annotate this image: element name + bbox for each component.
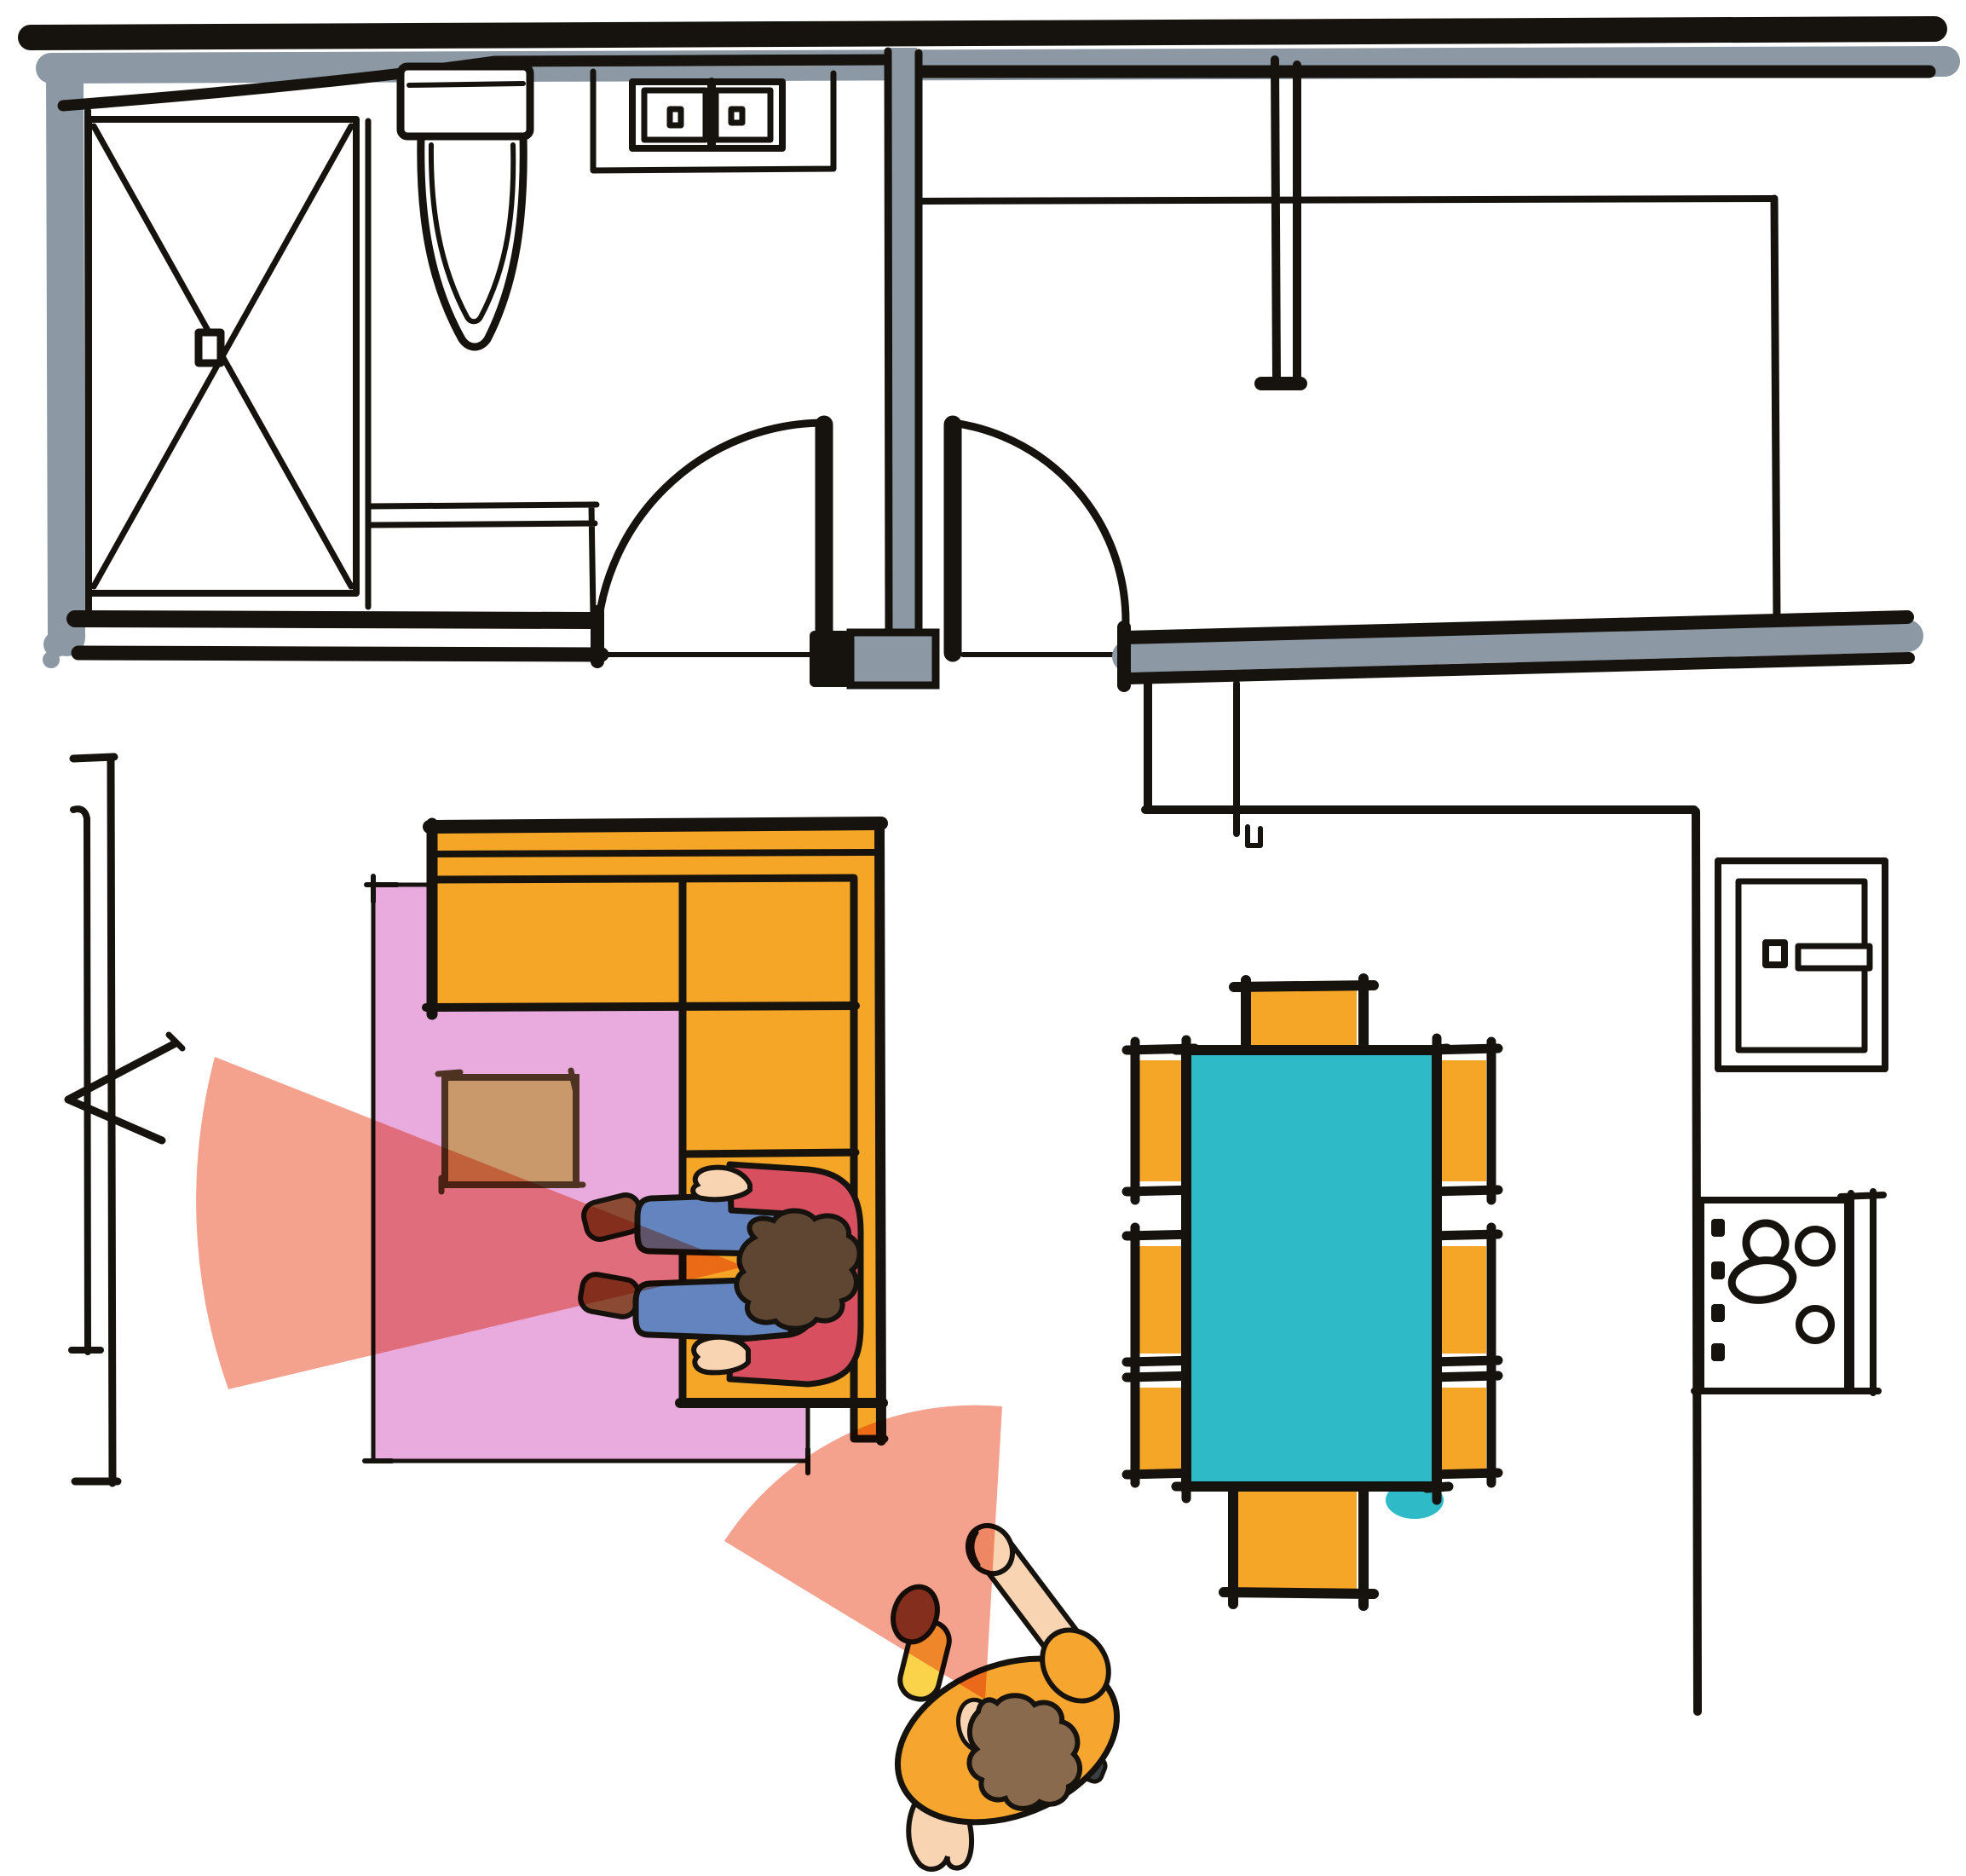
central-wall-fill	[890, 48, 917, 632]
stove-burner-4	[1799, 1308, 1831, 1341]
wall-bracket-marks	[68, 757, 182, 1483]
floor-plan-drawing	[0, 0, 1966, 1876]
sofa-seam-1	[426, 1006, 856, 1007]
bathroom-bench	[370, 505, 597, 614]
toilet	[401, 66, 530, 347]
sitting-person-hand-2	[694, 1337, 748, 1373]
stove-knob-2	[1711, 1261, 1725, 1279]
chair-seat	[1435, 1388, 1486, 1469]
toilet-tank	[401, 66, 530, 136]
sofa-seam-2	[683, 1152, 856, 1154]
closet-partition-wall	[1275, 60, 1297, 384]
sofa-armrest-outer-line	[879, 823, 881, 1440]
door-arc-left	[597, 423, 824, 648]
left-wall-shadow	[65, 72, 66, 638]
room-divider-vertical	[1774, 199, 1777, 621]
toilet-tank-lid-line	[409, 84, 523, 85]
kitchen-boundary-vertical	[1696, 811, 1698, 1711]
living-room	[68, 757, 885, 1483]
bracket-inner-line	[73, 809, 88, 1352]
kitchen-sink-cabinet	[1718, 861, 1885, 1069]
central-wall-stub	[850, 632, 936, 685]
sink-drain	[1766, 943, 1784, 965]
stove	[1694, 1192, 1883, 1393]
shower	[89, 119, 368, 607]
vanity-double-sink	[593, 72, 833, 170]
door-arc-right	[953, 423, 1126, 639]
dining-table	[1186, 1050, 1437, 1486]
bath-bottom-wall-1	[75, 619, 590, 621]
stove-burner-1	[1746, 1223, 1785, 1262]
chair-seat	[1237, 1490, 1357, 1590]
sofa-back-seam	[431, 852, 878, 854]
left-wall-shadow-blob2	[43, 651, 60, 668]
stove-knob-4	[1711, 1343, 1725, 1361]
sofa-top-edge	[430, 823, 881, 827]
sofa-cushion-top-line	[432, 878, 854, 880]
bath-bottom-wall-2	[78, 653, 602, 655]
sink-drain-right	[731, 109, 742, 123]
sofa-cushion-right-1	[683, 1007, 854, 1154]
room-divider-horizontal	[920, 199, 1774, 201]
sofa-cushion-top-right	[683, 880, 854, 1007]
dining-area	[1127, 978, 1498, 1606]
sofa-cushion-top-left	[430, 880, 683, 1007]
sink-drain-left	[670, 109, 681, 125]
stove-knob-3	[1711, 1304, 1725, 1322]
top-wall-outer	[31, 29, 1934, 38]
sitting-person-hair	[736, 1210, 859, 1328]
stove-knob-1	[1711, 1219, 1725, 1237]
kitchen	[1694, 861, 1885, 1393]
bench-outline	[370, 505, 597, 614]
chair-seat	[1435, 1246, 1486, 1354]
stove-burner-3	[1798, 1229, 1832, 1263]
sink-faucet	[1798, 946, 1870, 968]
shower-drain	[199, 332, 221, 363]
sitting-person-hand-1	[693, 1168, 750, 1200]
landing-hook-mark	[1248, 827, 1260, 846]
chair-seat	[1435, 1060, 1486, 1181]
floor-plan-canvas	[0, 0, 1966, 1876]
